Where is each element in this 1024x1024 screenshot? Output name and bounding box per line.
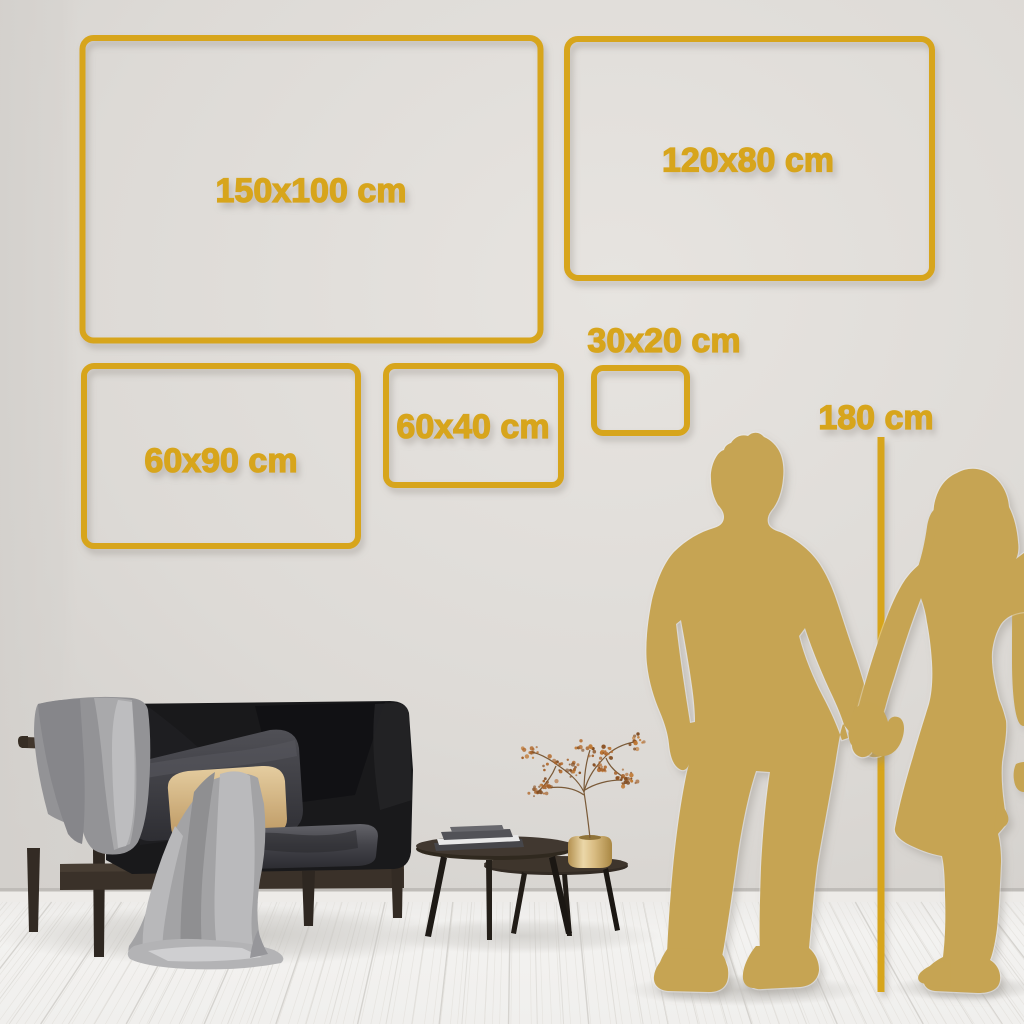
svg-text:180 cm: 180 cm [818,399,933,437]
svg-text:60x90 cm: 60x90 cm [144,442,297,480]
svg-text:30x20 cm: 30x20 cm [587,322,740,360]
svg-text:60x40 cm: 60x40 cm [396,408,549,446]
svg-text:150x100 cm: 150x100 cm [216,172,407,210]
svg-text:120x80 cm: 120x80 cm [662,142,834,180]
